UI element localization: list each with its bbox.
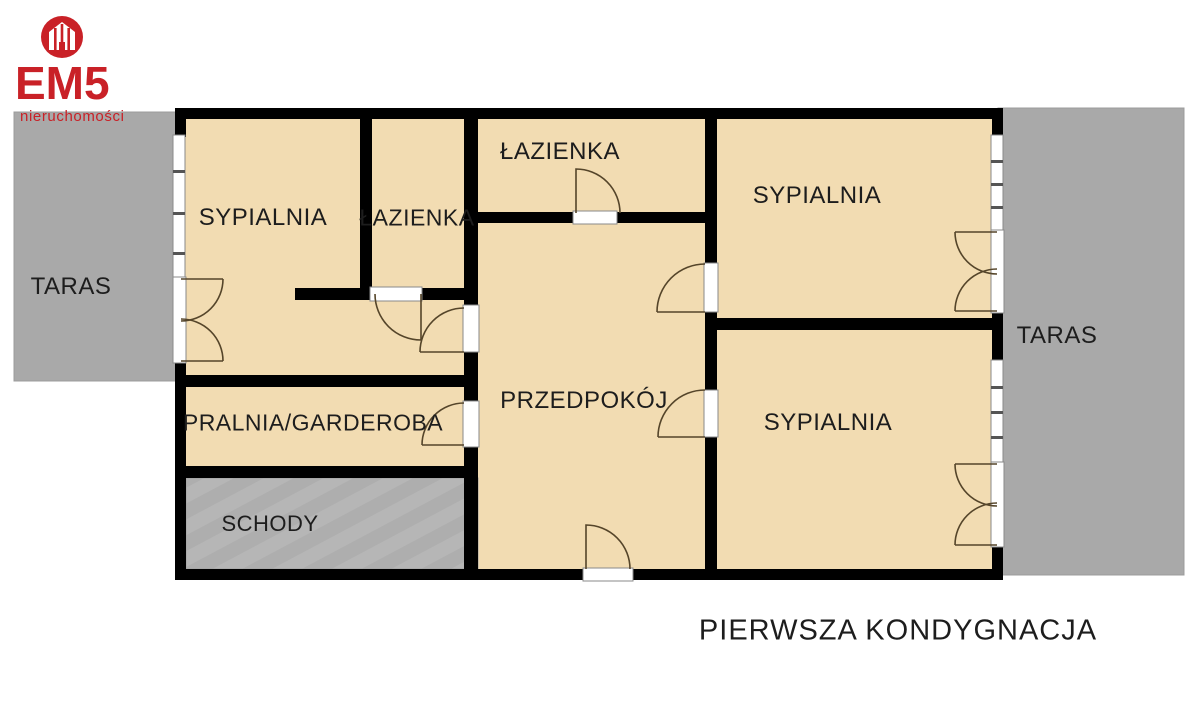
house-icon [40, 14, 84, 60]
wall-bath-top-bottom-right [617, 212, 717, 223]
floor-plan-drawing [0, 0, 1200, 719]
brand-tagline: nieruchomości [20, 109, 125, 124]
room-label-stairs: SCHODY [221, 511, 318, 537]
wall-exterior-bottom-right [633, 569, 1003, 580]
room-label-terrace-right: TARAS [1017, 322, 1098, 350]
door-threshold-bedroom-bottom-right [704, 390, 718, 437]
wall-exterior-top [175, 108, 1003, 119]
door-threshold-terrace-left [173, 277, 186, 363]
room-label-bedroom-left: SYPIALNIA [199, 204, 328, 232]
door-threshold-bath-left [370, 287, 422, 301]
door-threshold-entrance [583, 568, 633, 581]
door-threshold-terrace-right-bottom [991, 462, 1004, 547]
logo: EM5 nieruchomości [0, 0, 180, 140]
room-label-bedroom-bottom-right: SYPIALNIA [764, 409, 893, 437]
window-right-top-icon [991, 135, 1003, 230]
wall-exterior-right-lower [992, 547, 1003, 580]
wall-hallway-right-lower [705, 437, 717, 569]
room-label-laundry: PRALNIA/GARDEROBA [183, 410, 443, 437]
wall-vestibule-top-right [422, 288, 478, 300]
wall-hallway-right-upper [705, 108, 717, 263]
wall-laundry-bottom [175, 466, 478, 478]
room-label-bedroom-top-right: SYPIALNIA [753, 182, 882, 210]
wall-exterior-bottom-left [175, 569, 583, 580]
wall-exterior-right-upper [992, 108, 1003, 137]
room-label-hallway: PRZEDPOKÓJ [500, 387, 668, 415]
room-label-bathroom-top: ŁAZIENKA [500, 138, 620, 166]
window-left-icon [173, 135, 185, 277]
wall-right-bedrooms-divider [705, 318, 1003, 330]
terrace-left-area [14, 112, 180, 381]
floor-caption: PIERWSZA KONDYGNACJA [699, 615, 1097, 648]
wall-laundry-top [175, 375, 478, 387]
wall-vestibule-top-left [295, 288, 370, 300]
floor-plan-page: TARAS SYPIALNIA ŁAZIENKA ŁAZIENKA SYPIAL… [0, 0, 1200, 719]
door-threshold-bath-top [573, 211, 617, 224]
room-label-terrace-left: TARAS [31, 273, 112, 301]
brand-name: EM5 [15, 60, 110, 106]
door-threshold-terrace-right-top [991, 230, 1004, 313]
room-label-bathroom-left: ŁAZIENKA [359, 205, 474, 232]
window-right-bottom-icon [991, 360, 1003, 462]
door-threshold-bedroom-top-right [704, 263, 718, 312]
wall-central-lower [464, 447, 478, 569]
wall-bath-top-bottom-left [464, 212, 573, 223]
door-threshold-laundry [463, 401, 479, 447]
door-threshold-vestibule [463, 305, 479, 352]
